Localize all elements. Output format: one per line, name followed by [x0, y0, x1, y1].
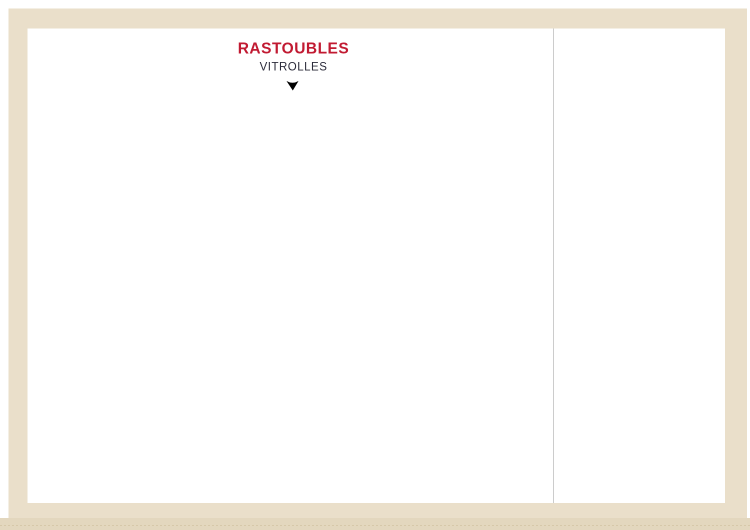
svg-text:VITROLLES: VITROLLES — [260, 62, 328, 74]
svg-text:RASTOUBLES: RASTOUBLES — [238, 41, 350, 58]
